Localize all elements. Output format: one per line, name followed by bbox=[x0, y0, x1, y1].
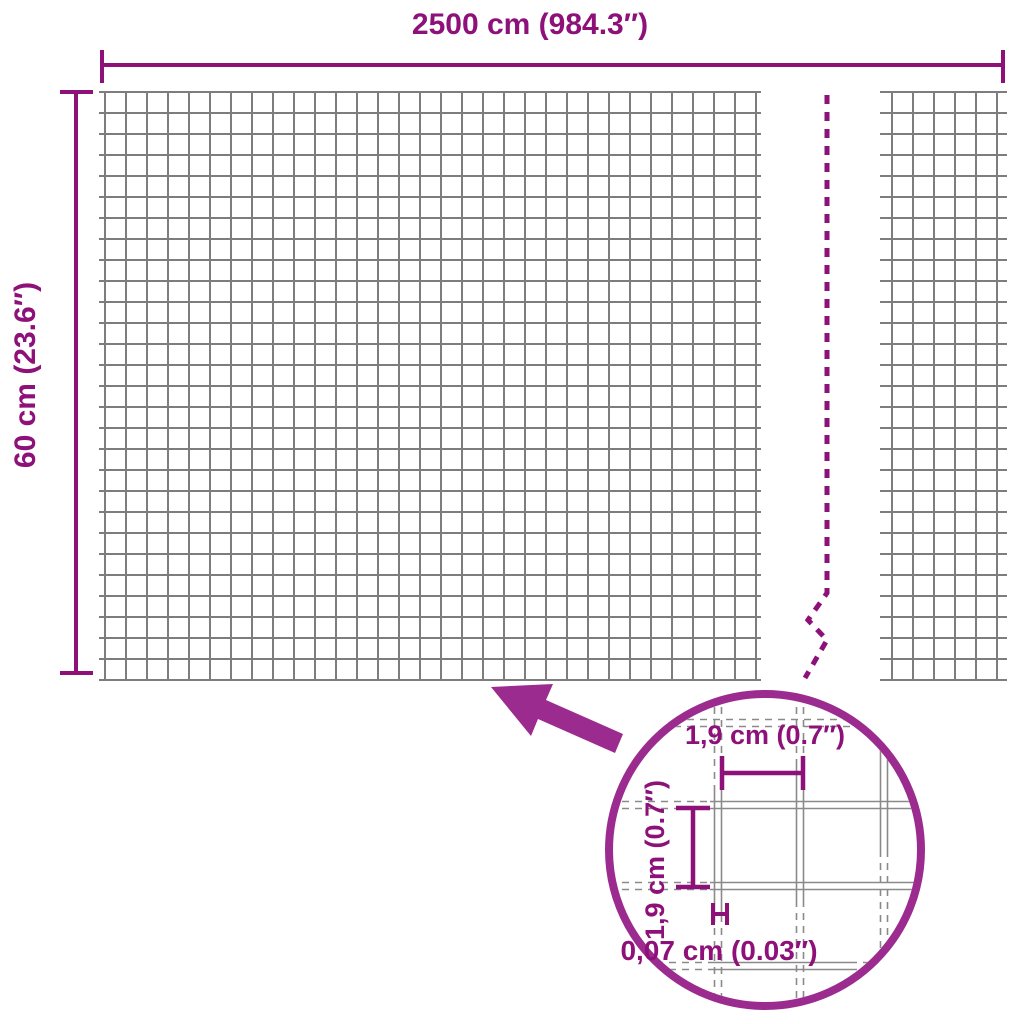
wire-thickness-label: 0,07 cm (0.03″) bbox=[620, 935, 817, 966]
width-dimension-line bbox=[102, 63, 1003, 67]
height-dimension-label: 60 cm (23.6″) bbox=[9, 225, 43, 525]
break-dashed-line bbox=[805, 95, 827, 678]
width-dimension-tick-right bbox=[1001, 50, 1005, 83]
detail-magnifier: 1,9 cm (0.7″) 1,9 cm (0.7″) 0,07 cm (0.0… bbox=[585, 670, 945, 1024]
mesh-panel-right-vertical-wires bbox=[891, 91, 1000, 679]
product-dimension-diagram: 2500 cm (984.3″) 60 cm (23.6″) bbox=[0, 0, 1024, 1024]
height-dimension-tick-top bbox=[60, 90, 93, 94]
height-dimension-line bbox=[74, 92, 78, 675]
mesh-width-label: 1,9 cm (0.7″) bbox=[685, 720, 845, 750]
height-dimension-tick-bottom bbox=[60, 671, 93, 675]
mesh-panel-main-vertical-wires bbox=[104, 91, 757, 679]
width-dimension-tick-left bbox=[100, 50, 104, 83]
width-dimension-label: 2500 cm (984.3″) bbox=[330, 8, 730, 42]
mesh-height-label: 1,9 cm (0.7″) bbox=[640, 780, 670, 940]
